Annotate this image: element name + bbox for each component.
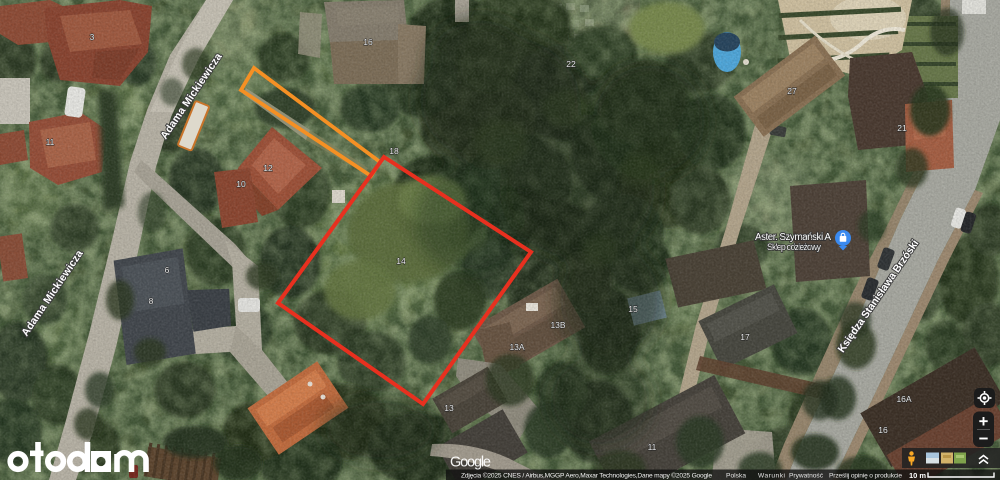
svg-text:Zdjęcia ©2025 CNES / Airbus,MG: Zdjęcia ©2025 CNES / Airbus,MGGP Aero,Ma… bbox=[461, 471, 712, 479]
svg-text:11: 11 bbox=[46, 137, 55, 147]
svg-text:13: 13 bbox=[444, 403, 454, 413]
svg-text:10 m: 10 m bbox=[909, 471, 926, 480]
svg-text:10: 10 bbox=[236, 179, 246, 189]
svg-text:Prywatność: Prywatność bbox=[789, 472, 824, 479]
svg-text:6: 6 bbox=[165, 265, 170, 275]
svg-text:Polska: Polska bbox=[726, 472, 746, 479]
svg-text:11: 11 bbox=[648, 442, 657, 452]
svg-text:14: 14 bbox=[396, 256, 406, 266]
svg-text:27: 27 bbox=[787, 86, 797, 96]
svg-text:13B: 13B bbox=[550, 320, 565, 330]
svg-text:Warunki: Warunki bbox=[758, 472, 786, 479]
svg-text:16: 16 bbox=[363, 37, 373, 47]
svg-text:22: 22 bbox=[566, 59, 576, 69]
svg-text:17: 17 bbox=[740, 332, 750, 342]
svg-text:12: 12 bbox=[263, 163, 273, 173]
svg-text:15: 15 bbox=[628, 304, 638, 314]
svg-text:16: 16 bbox=[878, 425, 888, 435]
svg-text:13A: 13A bbox=[509, 342, 524, 352]
svg-text:Sklep odzieżowy: Sklep odzieżowy bbox=[767, 242, 822, 252]
svg-text:16A: 16A bbox=[896, 394, 911, 404]
svg-text:Google: Google bbox=[450, 455, 491, 471]
svg-text:Prześlij opinię o produkcie: Prześlij opinię o produkcie bbox=[829, 472, 902, 479]
svg-text:21: 21 bbox=[897, 123, 907, 133]
svg-text:3: 3 bbox=[90, 32, 95, 42]
svg-text:8: 8 bbox=[149, 296, 154, 306]
svg-text:18: 18 bbox=[389, 146, 399, 156]
